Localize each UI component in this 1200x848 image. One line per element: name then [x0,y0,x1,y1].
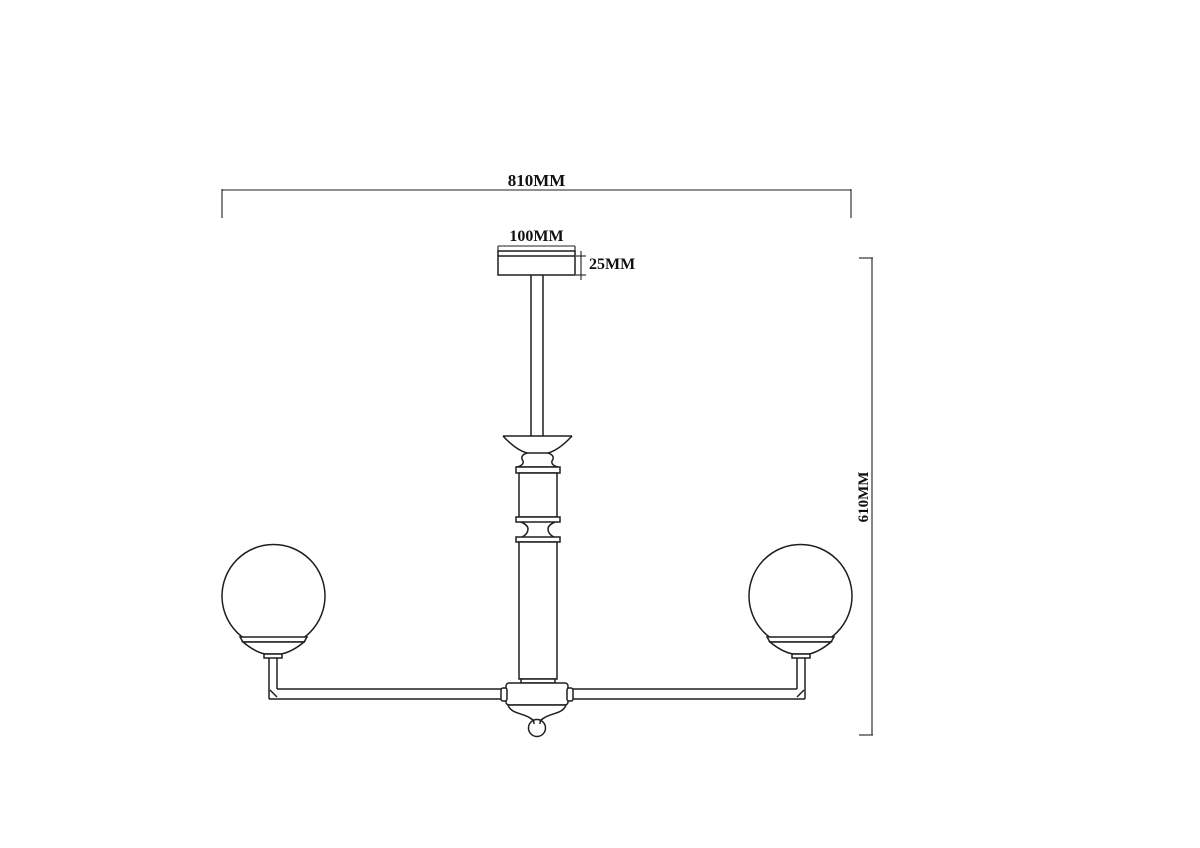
dimension-label-overall-height: 610MM [856,469,872,525]
hub-body [506,683,568,705]
dimension-label-canopy-height: 25MM [589,256,635,274]
dimension-label-overall-width: 810MM [472,171,601,191]
funnel-coupling [503,436,572,467]
left-holder-taper [243,642,304,654]
right-holder-taper [770,642,831,654]
drop-rod [531,275,543,436]
finial-ball [529,720,546,737]
right-globe-shade [749,545,852,648]
left-arm [269,658,501,699]
spool-left-curve [521,522,528,537]
upper-cylinder [519,473,557,517]
left-globe-shade [222,545,325,648]
canopy-body [498,251,575,275]
right-holder-band [792,654,810,658]
upper-plate-bottom [516,517,560,522]
right-globe-lamp [749,545,852,659]
long-cylinder [519,542,557,679]
dimension-overall-width [222,189,851,218]
left-globe-lamp [222,545,325,659]
dimension-label-canopy-width: 100MM [487,228,586,246]
hub-right-cap [567,688,573,701]
center-hub [501,683,573,705]
right-arm [573,658,805,699]
funnel-left-curve [503,436,527,453]
dimension-canopy-height [576,251,586,280]
upper-column [516,467,560,542]
spool-right-curve [548,522,555,537]
funnel-neck-bulge [517,453,558,467]
ceiling-canopy [498,251,575,275]
hub-left-cap [501,688,507,701]
left-corner-chamfer [270,690,277,697]
funnel-right-curve [548,436,572,453]
right-corner-chamfer [797,690,804,697]
upper-plate-top [516,467,560,473]
bottom-finial [508,705,566,737]
chandelier-line-drawing [0,0,1200,848]
drawing-canvas: 810MM 100MM 25MM 610MM [0,0,1200,848]
left-holder-band [264,654,282,658]
main-column [519,542,557,683]
